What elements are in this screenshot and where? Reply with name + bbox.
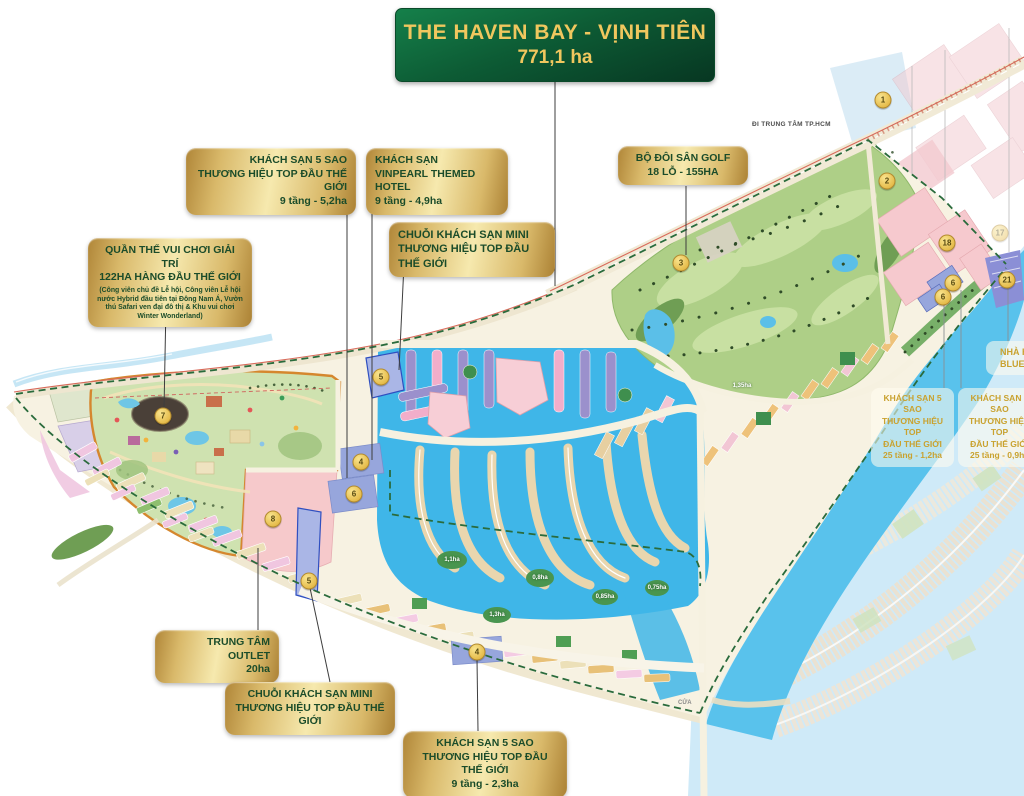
callout-hotel5-bottom: KHÁCH SẠN 5 SAO THƯƠNG HIỆU TOP ĐẦU THẾ … [403, 731, 567, 796]
map-marker-4: 4 [469, 644, 486, 661]
callout-line: 122HA HÀNG ĐẦU THẾ GIỚI [97, 271, 243, 285]
callout-theme-park: QUẦN THỂ VUI CHƠI GIẢI TRÍ 122HA HÀNG ĐẦ… [88, 238, 252, 327]
project-name: THE HAVEN BAY - VỊNH TIÊN [396, 21, 714, 45]
callout-line: 25 tầng - 1,2ha [875, 450, 950, 461]
callout-line: THƯƠNG HIỆU TOP [875, 416, 950, 439]
callout-line: NHÀ H [1000, 346, 1024, 358]
callout-golf: BỘ ĐÔI SÂN GOLF 18 LỖ - 155HA [618, 146, 748, 185]
callout-line: 25 tầng - 0,9ha [962, 450, 1024, 461]
map-marker-17: 17 [992, 225, 1009, 242]
callout-line: TRUNG TÂM OUTLET [164, 636, 270, 663]
map-marker-1: 1 [875, 92, 892, 109]
callout-line: QUẦN THỂ VUI CHƠI GIẢI TRÍ [97, 244, 243, 271]
map-marker-8: 8 [265, 511, 282, 528]
project-title-box: THE HAVEN BAY - VỊNH TIÊN 771,1 ha [395, 8, 715, 82]
area-size-label: 0,85ha [596, 594, 615, 600]
callout-line: CHUỖI KHÁCH SẠN MINI [234, 688, 386, 702]
master-plan-page: THE HAVEN BAY - VỊNH TIÊN 771,1 ha KHÁCH… [0, 0, 1024, 796]
map-marker-18: 18 [939, 235, 956, 252]
callout-line: 9 tầng - 5,2ha [195, 195, 347, 209]
callout-line: KHÁCH SẠN 5 SAO [875, 393, 950, 416]
map-marker-6: 6 [935, 289, 952, 306]
map-marker-3: 3 [673, 255, 690, 272]
project-area: 771,1 ha [396, 47, 714, 69]
callout-line: THƯƠNG HIỆU TOP ĐẦU THẾ GIỚI [234, 702, 386, 729]
callout-line: THƯƠNG HIỆU TOP ĐẦU THẾ GIỚI [412, 751, 558, 778]
callout-vinpearl-hotel: KHÁCH SẠN VINPEARL THEMED HOTEL 9 tầng -… [366, 148, 508, 215]
area-size-label: 0,8ha [532, 575, 547, 581]
callout-line: THẾ GIỚI [398, 257, 546, 271]
callout-line: VINPEARL THEMED HOTEL [375, 168, 499, 195]
callout-line: BỘ ĐÔI SÂN GOLF [627, 152, 739, 166]
map-marker-21: 21 [999, 272, 1016, 289]
callout-tower-0-9ha: KHÁCH SẠN 5 SAO THƯƠNG HIỆU TOP ĐẦU THẾ … [958, 388, 1024, 467]
callout-line: ĐẦU THẾ GIỚI [875, 439, 950, 450]
callout-line: THƯƠNG HIỆU TOP [962, 416, 1024, 439]
map-marker-4: 4 [353, 454, 370, 471]
callout-line: BLUE V [1000, 358, 1024, 370]
callout-line: 9 tầng - 4,9ha [375, 195, 499, 209]
callout-hotel5-top: KHÁCH SẠN 5 SAO THƯƠNG HIỆU TOP ĐẦU THẾ … [186, 148, 356, 215]
map-marker-5: 5 [373, 369, 390, 386]
callout-mini-hotel-top: CHUỖI KHÁCH SẠN MINI THƯƠNG HIỆU TOP ĐẦU… [389, 222, 555, 277]
map-marker-5: 5 [301, 573, 318, 590]
map-marker-6: 6 [346, 486, 363, 503]
callout-description: (Công viên chủ đề Lễ hội, Công viên Lễ h… [97, 287, 243, 322]
callout-line: THƯƠNG HIỆU TOP ĐẦU THẾ GIỚI [195, 168, 347, 195]
callout-line: KHÁCH SẠN [375, 154, 499, 168]
river-mouth-label: CỬA [678, 700, 692, 706]
area-size-label: 1,3ha [489, 612, 504, 618]
area-size-label: 1,1ha [444, 557, 459, 563]
area-size-label: 0,75ha [648, 585, 667, 591]
callout-line: CHUỖI KHÁCH SẠN MINI [398, 228, 546, 242]
callout-tower-1-2ha: KHÁCH SẠN 5 SAO THƯƠNG HIỆU TOP ĐẦU THẾ … [871, 388, 954, 467]
callout-line: KHÁCH SẠN 5 SAO [195, 154, 347, 168]
road-label-tphcm: ĐI TRUNG TÂM TP.HCM [752, 121, 831, 128]
callout-line: 20ha [164, 663, 270, 677]
callout-line: THƯƠNG HIỆU TOP ĐẦU [398, 242, 546, 256]
map-marker-7: 7 [155, 408, 172, 425]
callout-line: 18 LỖ - 155HA [627, 166, 739, 180]
callout-line: ĐẦU THẾ GIỚI [962, 439, 1024, 450]
callout-mini-hotel-bottom: CHUỖI KHÁCH SẠN MINI THƯƠNG HIỆU TOP ĐẦU… [225, 682, 395, 735]
callout-blue-v: NHÀ H BLUE V [986, 341, 1024, 375]
map-marker-2: 2 [879, 173, 896, 190]
area-size-label: 1,35ha [733, 383, 752, 389]
callout-line: 9 tầng - 2,3ha [412, 778, 558, 792]
callout-line: KHÁCH SẠN 5 SAO [412, 737, 558, 751]
callout-line: KHÁCH SẠN 5 SAO [962, 393, 1024, 416]
callout-outlet: TRUNG TÂM OUTLET 20ha [155, 630, 279, 683]
